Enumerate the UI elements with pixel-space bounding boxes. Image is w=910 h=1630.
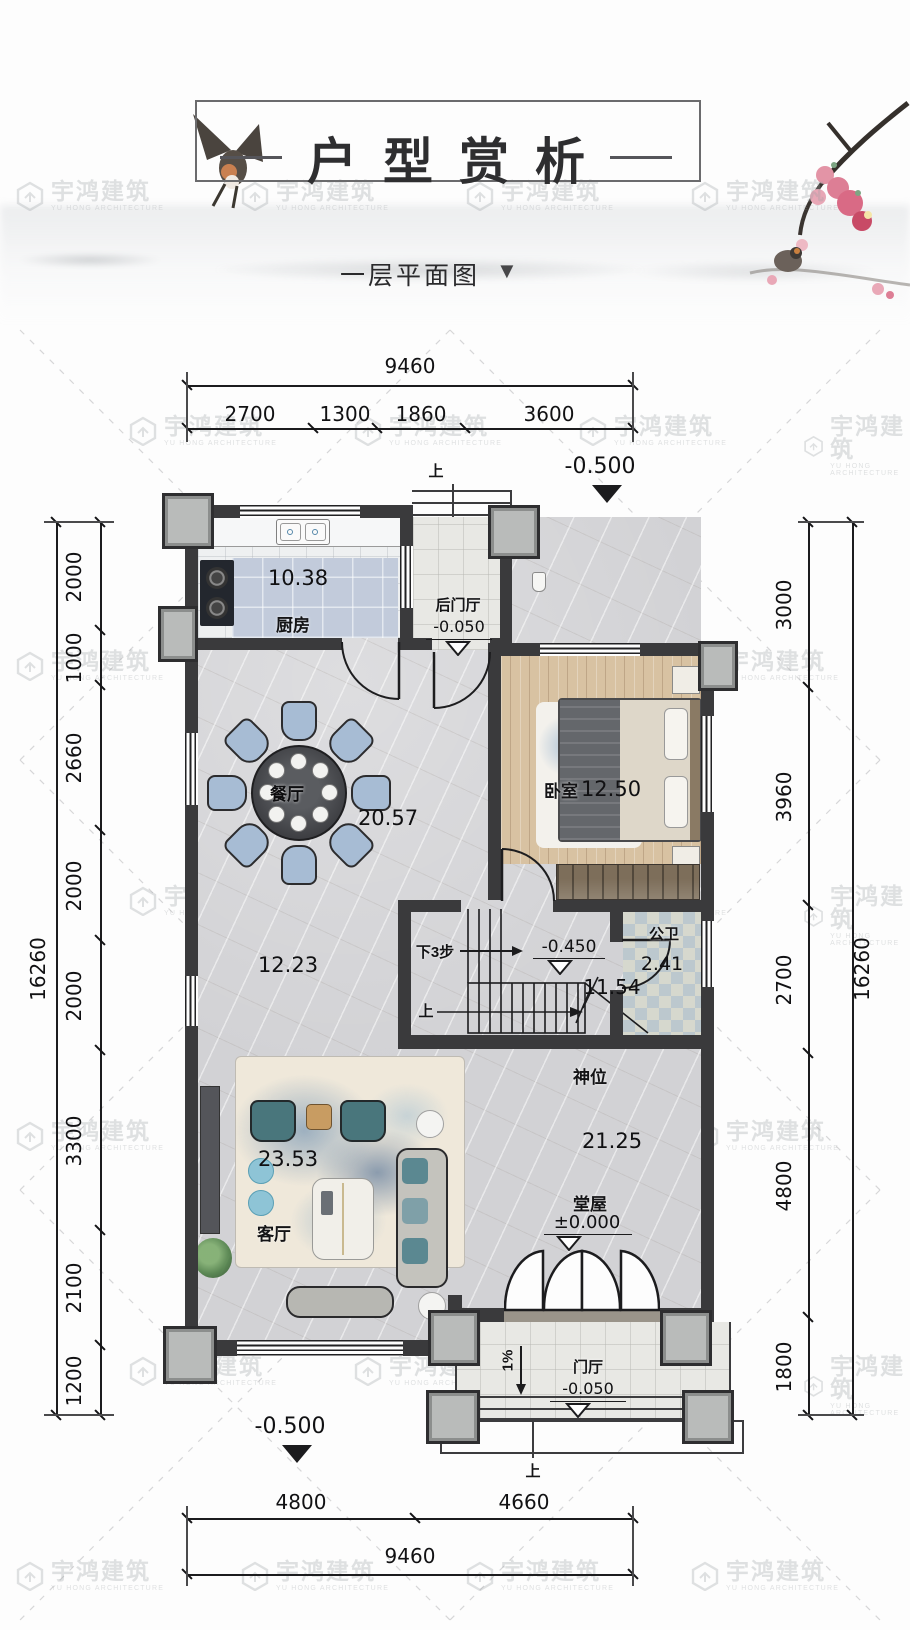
title-flourish-left [220,156,282,159]
bench [286,1286,394,1318]
dim-extension [44,1414,114,1416]
window [237,1340,403,1356]
column [163,1326,217,1384]
side-table [306,1104,332,1130]
column [660,1310,712,1366]
subtitle: 一层平面图 [330,256,490,292]
level-label-main-hall: ±0.000 [547,1212,627,1233]
slope-label: 1% [500,1341,517,1381]
nightstand [672,666,700,694]
area-label-kitchen: 10.38 [258,566,338,590]
area-label-main-hall: 21.25 [572,1129,652,1153]
dim-label: 2000 [62,846,86,926]
room-label-kitchen: 厨房 [253,611,333,636]
dim-bottom-seg-line [187,1518,633,1520]
dim-top-total-line [187,385,633,387]
level-label-foyer: -0.050 [548,1379,628,1398]
folding-entry-door [504,1246,660,1312]
column [428,1310,480,1366]
stair-down-arrow-head [512,946,523,956]
dim-label: 9460 [370,354,450,378]
title-flourish-right [610,156,672,159]
dim-label: 2700 [210,402,290,426]
window [701,716,714,812]
dim-label: 9460 [370,1544,450,1568]
dim-label: 3960 [772,757,796,837]
site-level-south: -0.500 [250,1414,330,1439]
dim-extension [632,372,634,442]
column [682,1390,734,1444]
level-triangle-icon [547,960,573,975]
sofa [396,1148,448,1288]
column [426,1390,480,1444]
room-label-dining: 餐厅 [247,780,327,805]
armchair [340,1100,386,1142]
dim-label: 4800 [261,1490,341,1514]
dim-label: 16260 [26,929,50,1009]
window [400,546,413,608]
dining-chair [281,701,317,741]
door-arc-bedroom [499,846,557,904]
level-triangle-icon [445,641,471,656]
stair-down-arrow-line [460,950,514,952]
area-label-bedroom: 12.50 [571,777,651,801]
shrine-label: 神位 [550,1063,630,1088]
dim-label: 2100 [62,1248,86,1328]
stair-mid-level: -0.450 [529,937,609,957]
room-label-foyer: 门厅 [548,1356,628,1377]
room-label-living: 客厅 [234,1220,314,1245]
dim-label: 4660 [484,1490,564,1514]
level-triangle-filled-icon [280,1444,314,1464]
dim-label: 1800 [772,1327,796,1407]
dining-chair [281,845,317,885]
dining-chair [207,775,247,811]
area-label-living: 23.53 [248,1147,328,1171]
plant [194,1238,232,1278]
plan-outline [412,502,512,504]
entry-arrow-bottom-label: 上 [513,1460,553,1481]
entry-arrow-top-label: 上 [416,460,456,481]
room-label-back-foyer: 后门厅 [418,594,498,615]
dim-extension [186,1506,188,1586]
floor-plan-poster: 宇鸿建筑 YU HONG ARCHITECTURE 宇鸿建筑 YU HONG A… [0,0,910,1630]
dim-label: 2000 [62,956,86,1036]
kitchen-stove [200,560,234,626]
slope-arrow-head [516,1384,526,1395]
dim-extension [44,521,114,523]
dim-extension [186,372,188,442]
column [698,641,738,691]
wardrobe [556,864,700,900]
dim-extension [798,1414,864,1416]
dim-extension [632,1506,634,1586]
plate [290,753,307,770]
dim-extension [798,521,864,523]
plan-outline [440,1452,744,1454]
dim-label: 1860 [381,402,461,426]
area-label-bath: 2.41 [622,953,702,975]
window [240,505,360,518]
level-triangle-icon [565,1403,591,1418]
level-triangle-icon [556,1236,582,1251]
dim-label: 2700 [772,940,796,1020]
dim-bottom-total-line [187,1574,633,1576]
site-level-north: -0.500 [560,454,640,479]
dim-label: 2000 [62,537,86,617]
coffee-table [312,1178,374,1260]
bed [558,698,702,842]
dim-label: 4800 [772,1146,796,1226]
wall-segment [398,1035,714,1049]
window [185,976,198,1026]
kitchen-sink [276,519,330,545]
level-label-back-foyer: -0.050 [419,617,499,636]
column [488,505,540,559]
door-arc-back-foyer [432,650,492,712]
pouf [248,1190,274,1216]
window [185,733,198,805]
dim-label: 16260 [850,929,874,1009]
column [162,493,214,549]
wall-segment [553,900,714,912]
door-arc-kitchen [340,640,402,702]
down-triangle-icon: ▼ [496,258,518,284]
dim-label: 1000 [62,618,86,698]
wall-lamp [532,572,546,592]
stool [416,1110,444,1138]
area-label-hallway: 12.23 [248,953,328,977]
window [540,643,640,656]
room-label-bath: 公卫 [624,923,704,944]
stair-up-note: 上 [406,1000,446,1021]
dim-left-seg-line [100,522,102,1415]
slope-line [520,1346,522,1386]
level-triangle-filled-icon [590,484,624,504]
dim-top-seg-line [187,428,633,430]
area-label-stairwell: 11.54 [572,975,652,999]
dim-right-seg-line [808,522,810,1415]
area-label-dining: 20.57 [348,806,428,830]
tv-console [200,1086,220,1234]
plan-outline [412,490,512,492]
plate [290,815,307,832]
dim-label: 3000 [772,565,796,645]
plan-outline [742,1420,744,1453]
dim-label: 2660 [62,718,86,798]
dim-label: 1300 [305,402,385,426]
column [158,606,198,662]
dim-left-total-line [56,522,58,1415]
dim-label: 3300 [62,1101,86,1181]
armchair [250,1100,296,1142]
dim-label: 3600 [509,402,589,426]
dim-label: 1200 [62,1341,86,1421]
wall-segment [185,638,342,650]
